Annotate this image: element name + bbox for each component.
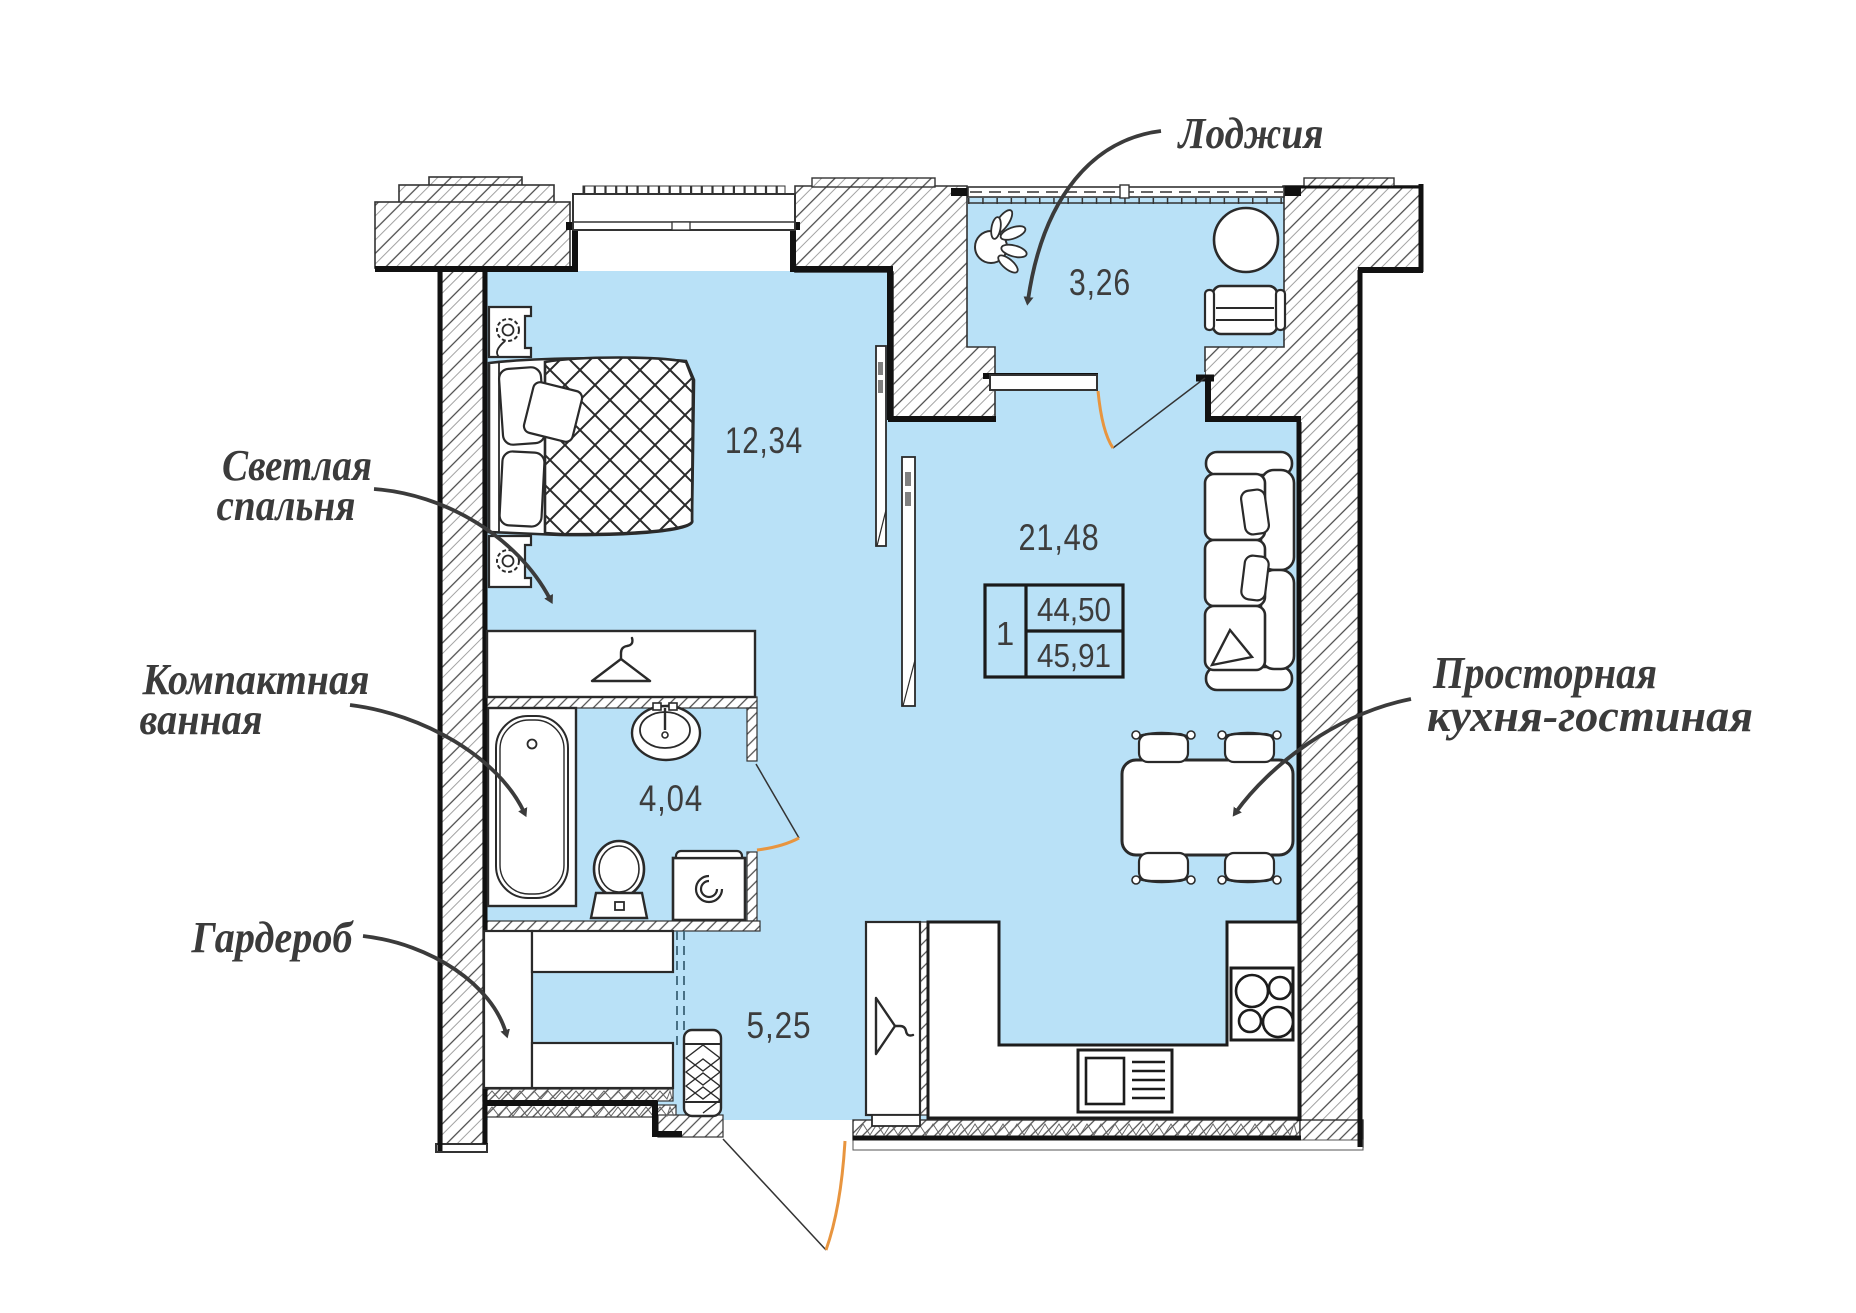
- svg-text:12,34: 12,34: [725, 420, 803, 461]
- svg-text:45,91: 45,91: [1037, 637, 1111, 674]
- svg-text:ванная: ванная: [140, 695, 263, 744]
- svg-text:3,26: 3,26: [1069, 262, 1131, 303]
- svg-text:1: 1: [996, 615, 1014, 652]
- svg-text:4,04: 4,04: [639, 778, 703, 819]
- svg-text:Гардероб: Гардероб: [191, 913, 355, 962]
- svg-text:Лоджия: Лоджия: [1177, 109, 1324, 158]
- svg-text:спальня: спальня: [217, 481, 356, 530]
- svg-text:44,50: 44,50: [1037, 591, 1111, 628]
- svg-text:кухня-гостиная: кухня-гостиная: [1427, 691, 1753, 741]
- svg-text:5,25: 5,25: [747, 1005, 812, 1046]
- svg-text:21,48: 21,48: [1019, 517, 1100, 558]
